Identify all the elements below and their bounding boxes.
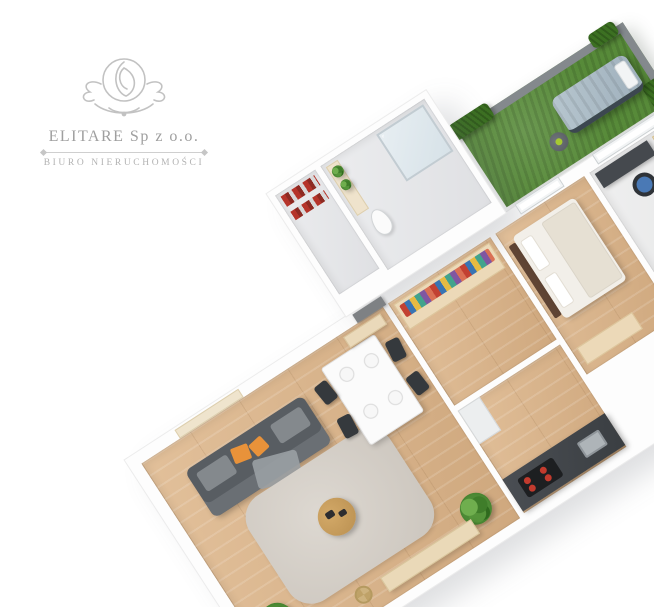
company-logo: ELITARE Sp z o.o. BIURO NIERUCHOMOŚCI: [40, 48, 208, 168]
logo-divider: [42, 152, 206, 153]
company-name: ELITARE Sp z o.o.: [40, 128, 208, 146]
crest-ornament-icon: [65, 48, 183, 126]
company-tagline: BIURO NIERUCHOMOŚCI: [40, 158, 208, 168]
page: ELITARE Sp z o.o. BIURO NIERUCHOMOŚCI: [0, 0, 654, 607]
